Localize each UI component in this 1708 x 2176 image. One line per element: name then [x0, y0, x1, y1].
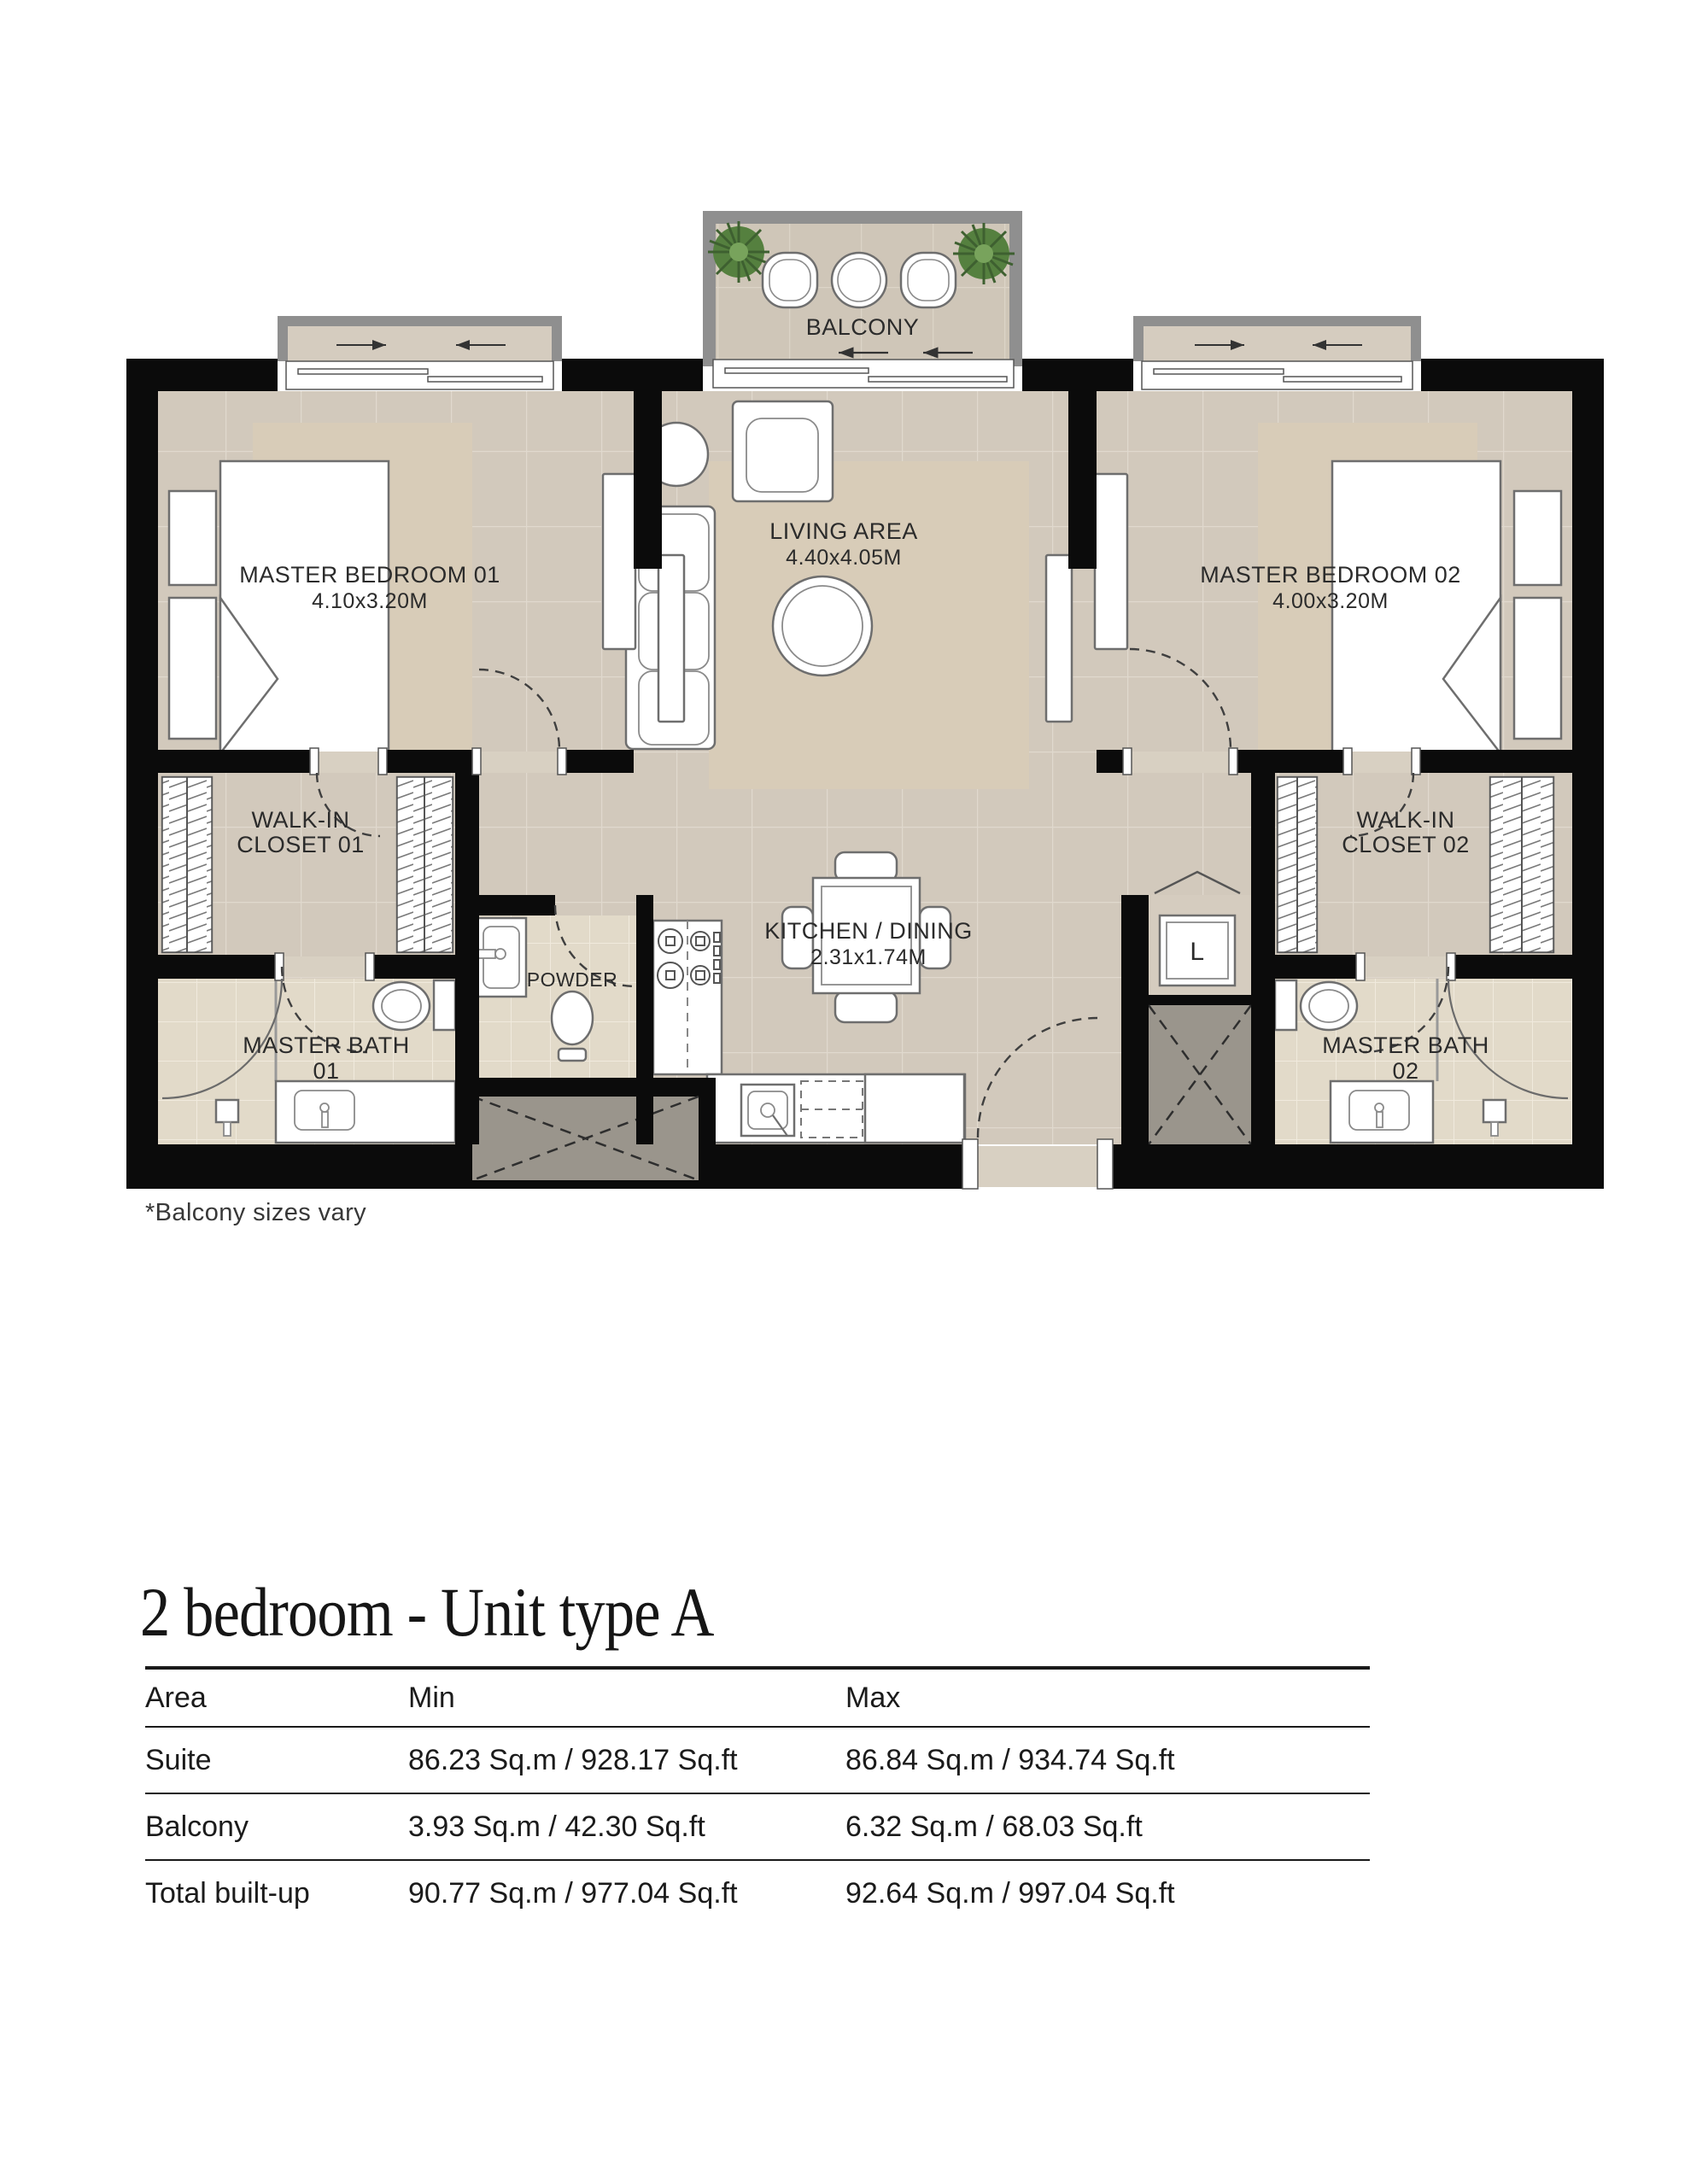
bay-left-frame [552, 316, 562, 361]
door-jamb [1412, 748, 1420, 775]
door-jamb [310, 748, 319, 775]
balcony-chair [901, 253, 956, 307]
door-jamb [1356, 953, 1365, 980]
living-label: LIVING AREA [769, 518, 918, 544]
bath1-label-2: 01 [313, 1058, 339, 1084]
door-jamb [1097, 1139, 1113, 1189]
page-title: 2 bedroom - Unit type A [140, 1572, 714, 1652]
row-min-value: 86.23 Sq.m / 928.17 Sq.ft [408, 1744, 845, 1777]
balcony-chair [763, 253, 817, 307]
row-label: Total built-up [145, 1877, 408, 1910]
shower-head-icon [216, 1100, 238, 1122]
entrance-threshold [978, 1146, 1097, 1187]
plant-icon [953, 223, 1015, 284]
toilet-bowl [1309, 990, 1348, 1022]
table-row: Total built-up 90.77 Sq.m / 977.04 Sq.ft… [145, 1861, 1370, 1926]
column-header-min: Min [408, 1682, 845, 1715]
nightstand [1514, 598, 1561, 739]
bath2-label-2: 02 [1392, 1058, 1418, 1084]
balcony-frame-left [703, 211, 716, 366]
bay-left-frame [278, 316, 562, 326]
faucet-head [320, 1103, 329, 1112]
faucet [322, 1112, 328, 1127]
column-header-max: Max [845, 1682, 1370, 1715]
closet1-label-2: CLOSET 01 [237, 832, 365, 857]
bath2-label-1: MASTER BATH [1322, 1032, 1489, 1058]
toilet-shelf [1275, 980, 1296, 1030]
door-jamb [962, 1139, 978, 1189]
faucet [477, 950, 495, 958]
door-jamb [558, 748, 566, 775]
shower-stem [1491, 1122, 1498, 1136]
shower-head-icon [1483, 1100, 1506, 1122]
row-max-value: 6.32 Sq.m / 68.03 Sq.ft [845, 1810, 1370, 1844]
tv-panel [658, 555, 684, 722]
nightstand [169, 491, 216, 585]
threshold [1363, 956, 1448, 977]
nightstand [1514, 491, 1561, 585]
toilet-bowl [382, 990, 421, 1022]
faucet-head [1375, 1103, 1383, 1112]
window-left [286, 361, 553, 389]
floor-plan: BALCONY MASTER BEDROOM 01 4.10x3.20M LIV… [0, 0, 1708, 1281]
mb2-dims: 4.00x3.20M [1272, 589, 1389, 613]
threshold [479, 752, 559, 773]
faucet [1377, 1112, 1383, 1127]
row-min-value: 90.77 Sq.m / 977.04 Sq.ft [408, 1877, 845, 1910]
door-jamb [472, 748, 481, 775]
faucet-head [495, 949, 506, 959]
area-table: Area Min Max Suite 86.23 Sq.m / 928.17 S… [145, 1666, 1370, 1926]
shower-stem [224, 1122, 231, 1136]
living-dims: 4.40x4.05M [786, 546, 902, 570]
tv-panel [603, 474, 635, 649]
fridge [865, 1074, 964, 1143]
slider-pane [428, 377, 542, 382]
coffee-table [773, 576, 872, 676]
bay-right-frame [1133, 316, 1144, 361]
slider-pane [1154, 369, 1284, 374]
mb2-label: MASTER BEDROOM 02 [1200, 562, 1461, 588]
kitchen-dims: 2.31x1.74M [810, 945, 927, 969]
mb1-label: MASTER BEDROOM 01 [239, 562, 500, 588]
table-header-row: Area Min Max [145, 1670, 1370, 1728]
shaft-divider [1149, 995, 1251, 1005]
toilet-icon [552, 991, 593, 1044]
toilet-seat [559, 1049, 586, 1061]
door-jamb [366, 953, 374, 980]
closet2-label-2: CLOSET 02 [1342, 832, 1470, 857]
door-jamb [1229, 748, 1237, 775]
balcony-label: BALCONY [806, 314, 920, 340]
closet1-label-1: WALK-IN [251, 807, 349, 833]
window-sills [286, 360, 1413, 389]
page: BALCONY MASTER BEDROOM 01 4.10x3.20M LIV… [0, 0, 1708, 2176]
threshold [1130, 752, 1231, 773]
window-right [1142, 361, 1413, 389]
bay-right-frame [1411, 316, 1421, 361]
toilet-shelf [434, 980, 455, 1030]
bay-right-frame [1133, 316, 1421, 326]
armchair-seat [746, 418, 818, 492]
slider-pane [1284, 377, 1401, 382]
column-header-area: Area [145, 1682, 408, 1715]
kitchen-label: KITCHEN / DINING [764, 918, 973, 944]
row-label: Balcony [145, 1810, 408, 1844]
dining-chair [835, 991, 897, 1022]
table-row: Suite 86.23 Sq.m / 928.17 Sq.ft 86.84 Sq… [145, 1728, 1370, 1794]
nightstand [169, 598, 216, 739]
closet2-label-1: WALK-IN [1356, 807, 1454, 833]
threshold [317, 752, 380, 773]
door-jamb [1123, 748, 1132, 775]
bay-left-frame [278, 316, 288, 361]
sink-drain [761, 1103, 775, 1117]
table-row: Balcony 3.93 Sq.m / 42.30 Sq.ft 6.32 Sq.… [145, 1794, 1370, 1861]
threshold [282, 956, 367, 977]
bath1-label-1: MASTER BATH [243, 1032, 410, 1058]
row-min-value: 3.93 Sq.m / 42.30 Sq.ft [408, 1810, 845, 1844]
balcony-frame-top [703, 211, 1022, 224]
balcony-frame-right [1009, 211, 1022, 366]
window-bay-right-floor [1144, 325, 1411, 361]
row-max-value: 86.84 Sq.m / 934.74 Sq.ft [845, 1744, 1370, 1777]
laundry-label: L [1190, 938, 1204, 966]
balcony-table [832, 253, 886, 307]
row-max-value: 92.64 Sq.m / 997.04 Sq.ft [845, 1877, 1370, 1910]
threshold [1350, 752, 1413, 773]
mb1-dims: 4.10x3.20M [312, 589, 428, 613]
door-jamb [378, 748, 387, 775]
slider-pane [869, 377, 1007, 382]
tv-panel [1046, 555, 1072, 722]
slider-pane [298, 369, 428, 374]
row-label: Suite [145, 1744, 408, 1777]
slider-pane [725, 368, 869, 373]
door-jamb [1343, 748, 1352, 775]
tv-panel [1095, 474, 1127, 649]
powder-label: POWDER [527, 968, 618, 991]
window-bay-left-floor [288, 325, 552, 361]
balcony-note: *Balcony sizes vary [145, 1199, 366, 1227]
plant-icon [708, 221, 769, 283]
